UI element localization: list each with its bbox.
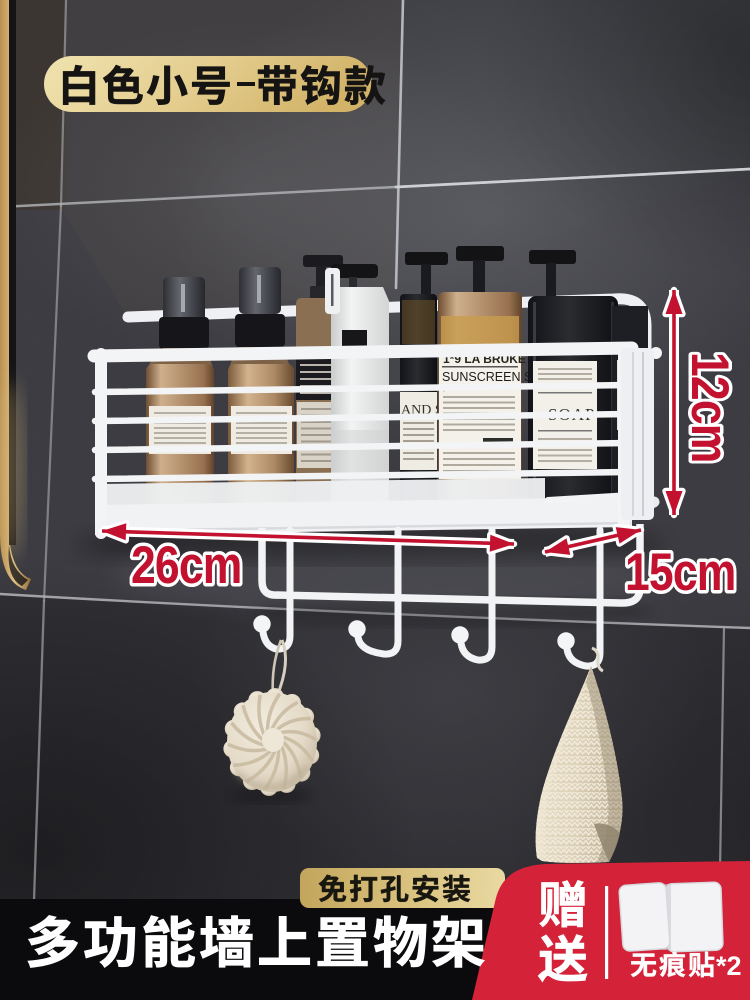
svg-text:15cm: 15cm bbox=[625, 543, 736, 601]
svg-text:*2: *2 bbox=[716, 951, 742, 981]
svg-text:12cm: 12cm bbox=[680, 352, 738, 463]
svg-text:26cm: 26cm bbox=[131, 536, 242, 594]
